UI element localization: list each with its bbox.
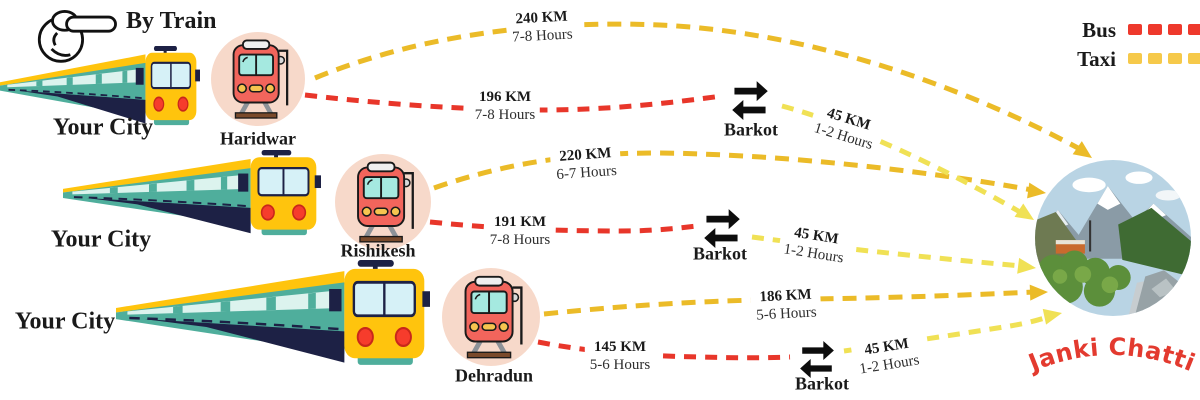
page-title: By Train: [126, 8, 216, 35]
bus-dash-swatch: [1122, 22, 1200, 40]
legend-taxi-label: Taxi: [1077, 47, 1116, 72]
route-duration: 7-8 Hours: [512, 25, 573, 46]
route-duration: 7-8 Hours: [490, 231, 550, 249]
legend-bus-label: Bus: [1082, 18, 1116, 43]
transfer-arrows-icon-row1: [727, 80, 773, 120]
station-icon-haridwar: [211, 32, 305, 126]
taxi-route-haridwar-line: [315, 24, 1078, 148]
taxi-dash-swatch: [1122, 51, 1200, 69]
train-icon-row2: [63, 150, 321, 236]
route-infographic: By Train Bus Taxi Your City Your City Yo…: [0, 0, 1200, 400]
route-duration: 5-6 Hours: [590, 356, 650, 374]
station-name-dehradun: Dehradun: [455, 366, 533, 387]
station-icon-rishikesh: [335, 154, 431, 250]
bus-route-dehradun-line: [538, 342, 790, 358]
legend: Bus Taxi: [990, 18, 1200, 76]
bus-route-rishikesh-line: [430, 222, 697, 231]
station-name-rishikesh: Rishikesh: [340, 241, 415, 262]
route-duration: 5-6 Hours: [756, 303, 817, 324]
route-duration: 7-8 Hours: [475, 106, 535, 124]
legend-taxi-row: Taxi: [990, 47, 1200, 72]
legend-bus-row: Bus: [990, 18, 1200, 43]
station-name-haridwar: Haridwar: [220, 129, 296, 150]
destination-photo: [1035, 160, 1191, 316]
origin-label-row1: Your City: [53, 115, 153, 142]
destination-name: Janki Chatti: [1022, 326, 1200, 382]
transfer-arrows-icon-row3: [795, 340, 839, 378]
route-duration: 6-7 Hours: [556, 162, 618, 184]
route-label-rishikesh-taxi: 220 KM 6-7 Hours: [550, 143, 623, 186]
route-label-dehradun-bus: 145 KM 5-6 Hours: [585, 337, 655, 375]
route-distance: 196 KM: [475, 88, 535, 106]
route-label-haridwar-bus: 196 KM 7-8 Hours: [470, 87, 540, 125]
station-icon-dehradun: [442, 268, 540, 366]
transfer-name-row2: Barkot: [693, 244, 747, 265]
destination-name-text: Janki Chatti: [1023, 333, 1199, 378]
origin-label-row3: Your City: [15, 309, 115, 336]
svg-text:Janki Chatti: Janki Chatti: [1023, 333, 1199, 378]
route-label-haridwar-taxi: 240 KM 7-8 Hours: [506, 6, 578, 48]
origin-label-row2: Your City: [51, 227, 151, 254]
train-icon-row3: [116, 260, 430, 366]
route-distance: 145 KM: [590, 338, 650, 356]
route-label-rishikesh-bus: 191 KM 7-8 Hours: [485, 212, 555, 250]
route-label-dehradun-taxi: 186 KM 5-6 Hours: [750, 284, 822, 326]
transfer-name-row1: Barkot: [724, 120, 778, 141]
route-distance: 191 KM: [490, 213, 550, 231]
transfer-name-row3: Barkot: [795, 374, 849, 395]
transfer-arrows-icon-row2: [699, 208, 745, 248]
